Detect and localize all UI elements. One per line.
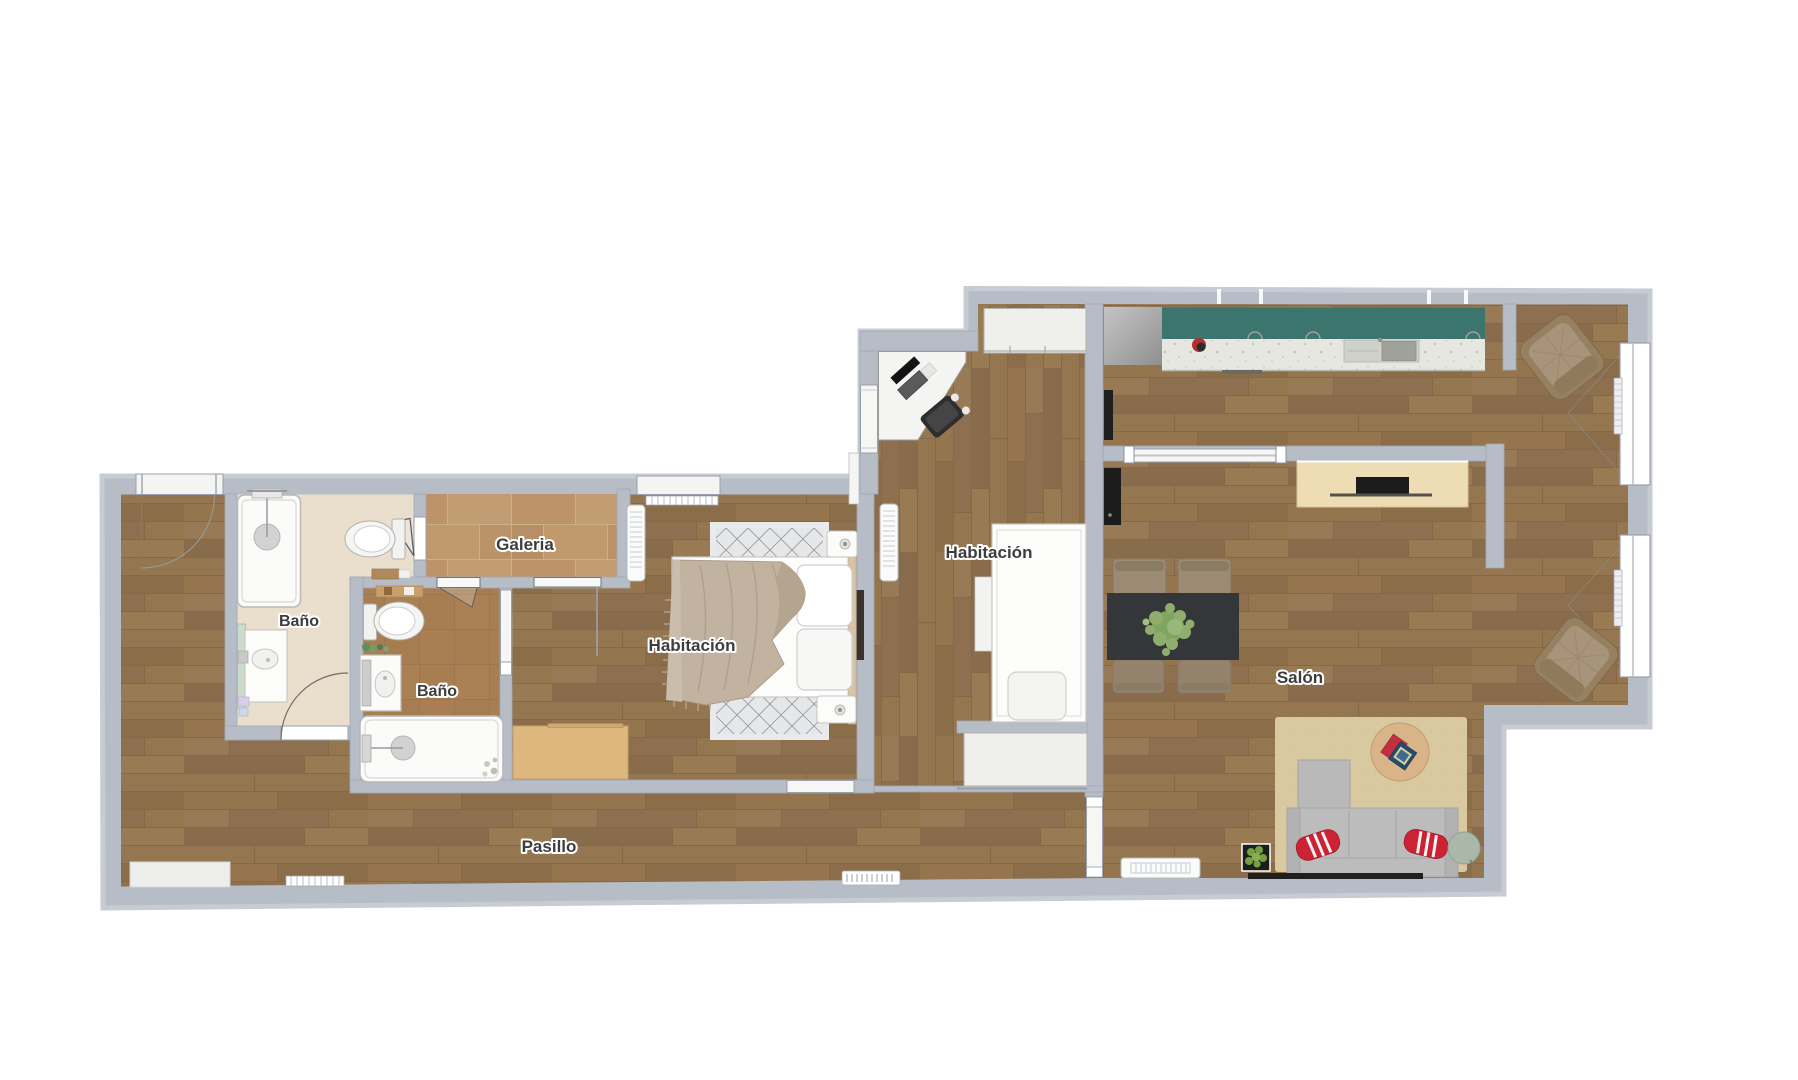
svg-text:Pasillo: Pasillo (522, 837, 577, 856)
svg-text:Habitación: Habitación (649, 636, 736, 655)
svg-text:Baño: Baño (417, 683, 457, 700)
svg-text:Baño: Baño (279, 613, 319, 630)
svg-text:Salón: Salón (1277, 668, 1323, 687)
svg-text:Galeria: Galeria (496, 535, 554, 554)
svg-text:Habitación: Habitación (946, 543, 1033, 562)
